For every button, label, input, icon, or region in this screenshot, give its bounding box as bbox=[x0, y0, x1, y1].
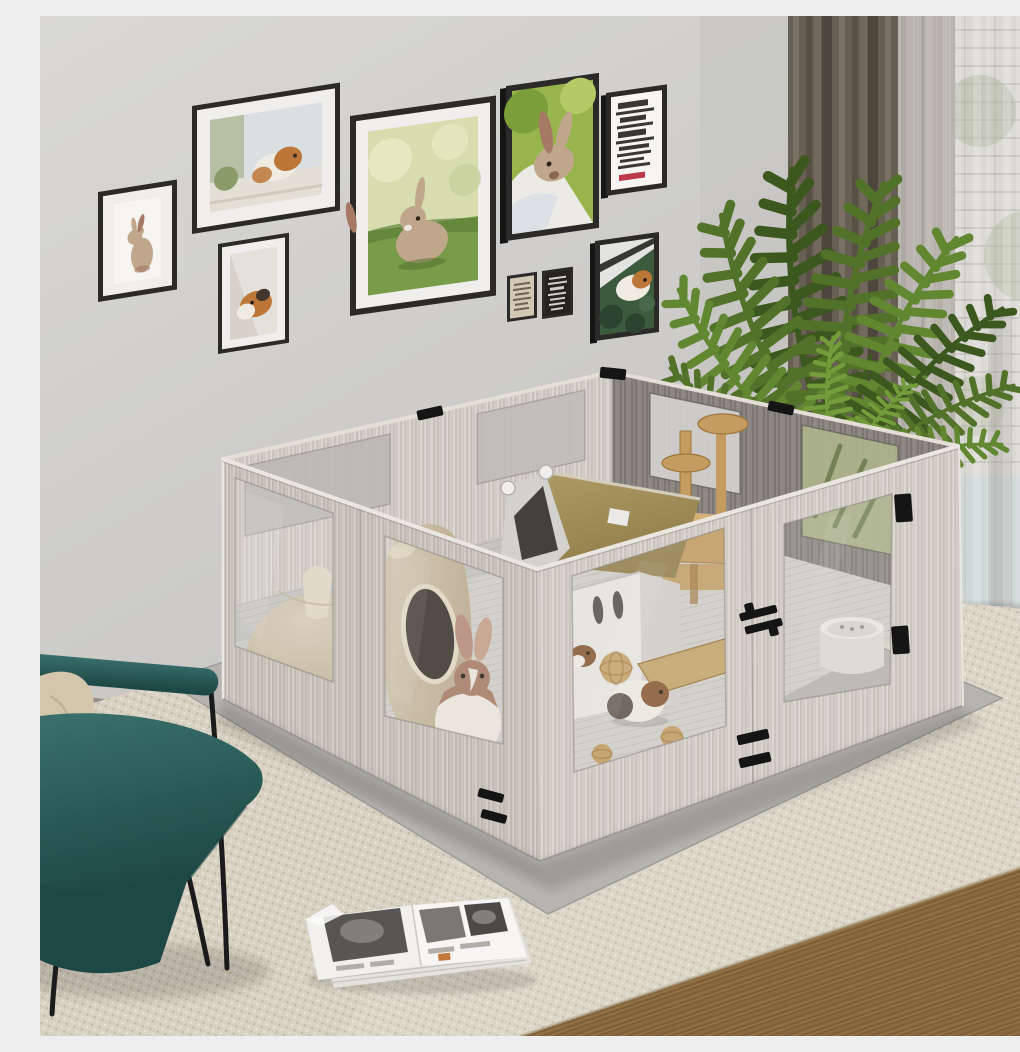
product-photo: Living room with a large square white-oa… bbox=[40, 16, 1020, 1036]
scene bbox=[40, 16, 1020, 1036]
vignette bbox=[40, 16, 1020, 1036]
